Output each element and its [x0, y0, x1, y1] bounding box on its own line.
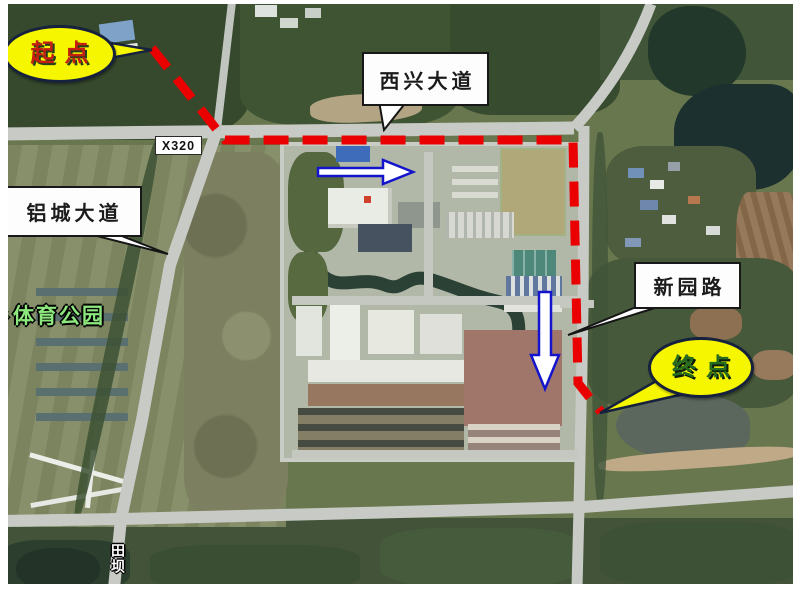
building-roof	[280, 18, 298, 28]
building-mark	[364, 196, 371, 203]
village-label: 田坝	[108, 543, 128, 575]
building-roof	[688, 196, 700, 204]
building-roof	[650, 180, 664, 189]
building	[446, 212, 514, 238]
building	[506, 276, 562, 296]
building-roof	[305, 8, 321, 18]
map-border	[0, 0, 8, 590]
start-callout: 起点	[3, 25, 116, 83]
figure-page: 起点 终点 西兴大道 铝城大道 新园路 X320 彡体育公园 田坝	[0, 0, 800, 590]
building-roof	[668, 162, 680, 171]
building-roof	[255, 5, 277, 17]
vacant-lot	[184, 152, 288, 520]
building	[336, 146, 370, 162]
storage-rows	[298, 408, 464, 454]
building-roof	[628, 168, 644, 178]
route-code-text: X320	[162, 139, 195, 153]
terrain-vegetation	[600, 522, 800, 586]
building-rows	[468, 424, 560, 452]
tree-row	[592, 132, 608, 504]
end-callout: 终点	[648, 337, 754, 398]
building-roof	[662, 215, 676, 224]
campus-road	[292, 296, 578, 305]
building-roof	[640, 200, 658, 210]
map-border	[793, 0, 800, 590]
building	[420, 314, 462, 354]
lvcheng-avenue-text: 铝城大道	[23, 197, 123, 226]
pond	[648, 6, 746, 96]
building-roof	[117, 43, 138, 56]
bare-patch	[690, 306, 742, 340]
satellite-map: 起点 终点 西兴大道 铝城大道 新园路 X320 彡体育公园 田坝	[0, 0, 800, 590]
xinyuan-road-text: 新园路	[650, 271, 726, 300]
sports-park-label: 彡体育公园	[0, 300, 105, 330]
building-roof	[625, 238, 641, 247]
construction-zone	[464, 330, 562, 426]
xixing-avenue-text: 西兴大道	[376, 65, 476, 94]
building	[368, 310, 414, 354]
building-roof	[706, 226, 720, 235]
building	[328, 188, 392, 228]
map-border	[0, 0, 800, 4]
campus-road	[424, 152, 433, 302]
campus-road	[560, 300, 594, 308]
campus-road	[292, 450, 578, 459]
start-label: 起点	[21, 42, 99, 66]
xinyuan-road-label: 新园路	[634, 262, 741, 309]
terrain-vegetation	[380, 528, 580, 586]
building	[358, 224, 412, 252]
bare-patch	[752, 350, 796, 380]
sports-park-text: 体育公园	[13, 305, 105, 328]
village-text: 田坝	[110, 543, 126, 575]
map-border	[0, 584, 800, 590]
village-area	[606, 146, 756, 266]
lvcheng-avenue-label: 铝城大道	[3, 186, 142, 237]
route-code-label: X320	[155, 136, 202, 155]
building	[296, 306, 322, 356]
end-label: 终点	[662, 356, 740, 380]
building-rows	[452, 166, 498, 202]
xixing-avenue-label: 西兴大道	[362, 52, 489, 106]
